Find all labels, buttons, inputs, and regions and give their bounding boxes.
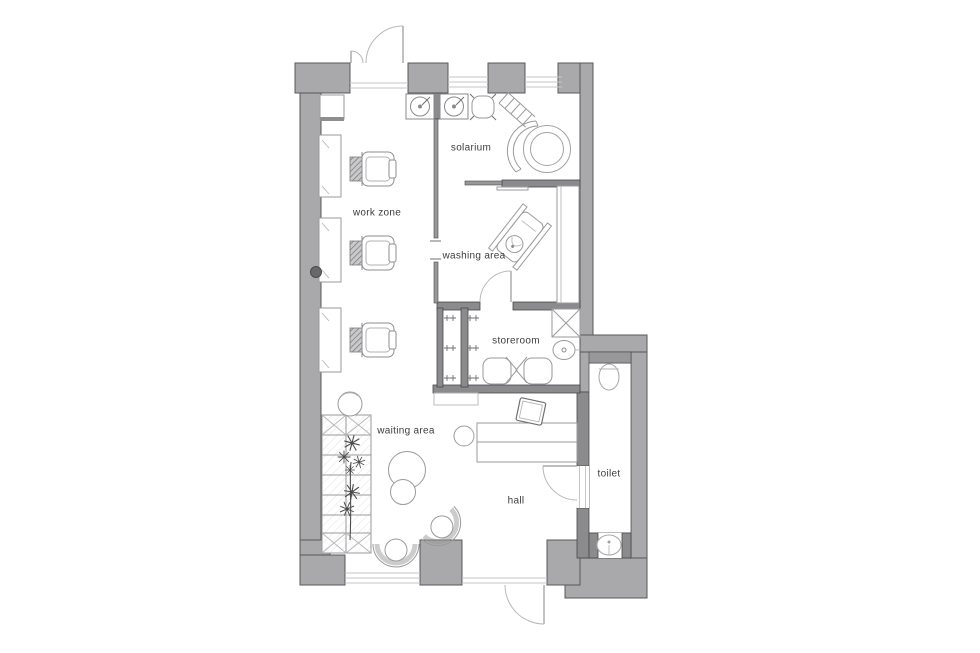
stool (470, 94, 496, 120)
washing-area-furniture (489, 186, 579, 303)
work-zone-furniture (311, 94, 469, 372)
solarium-furniture (470, 93, 571, 173)
planter-shelf (322, 415, 371, 553)
floor-plan: work zone solarium washing area storeroo… (0, 0, 980, 653)
chair (516, 398, 546, 426)
waiting-area-furniture (322, 392, 470, 567)
wall-column (311, 267, 322, 278)
niche (434, 393, 478, 405)
backwash-unit (489, 204, 552, 270)
chair (483, 358, 511, 384)
toilet-door-arc (543, 466, 577, 500)
sink-icon (440, 94, 468, 119)
hall-furniture (454, 398, 577, 462)
mirror-station (319, 218, 341, 282)
mirror-station (319, 308, 341, 372)
styling-chair (350, 323, 396, 357)
coffee-table-small (391, 480, 416, 505)
cabinet (320, 95, 344, 119)
reception-desk (477, 423, 577, 442)
back-door-arc (505, 585, 544, 624)
sink-icon (553, 341, 575, 360)
floor-plan-drawing (0, 0, 980, 653)
armchair (373, 539, 419, 567)
reception-desk (477, 442, 577, 462)
mirror-station (319, 135, 341, 197)
storeroom-door-arc (480, 271, 511, 302)
wc-icon (599, 364, 619, 390)
solarium-sliding-door (497, 187, 528, 190)
styling-chair (350, 236, 396, 270)
chair (524, 358, 552, 384)
entry-door-arc (366, 26, 403, 63)
tanning-capsule (507, 121, 570, 173)
counter (557, 186, 579, 303)
styling-chair (350, 152, 396, 186)
sink-icon (406, 94, 434, 119)
